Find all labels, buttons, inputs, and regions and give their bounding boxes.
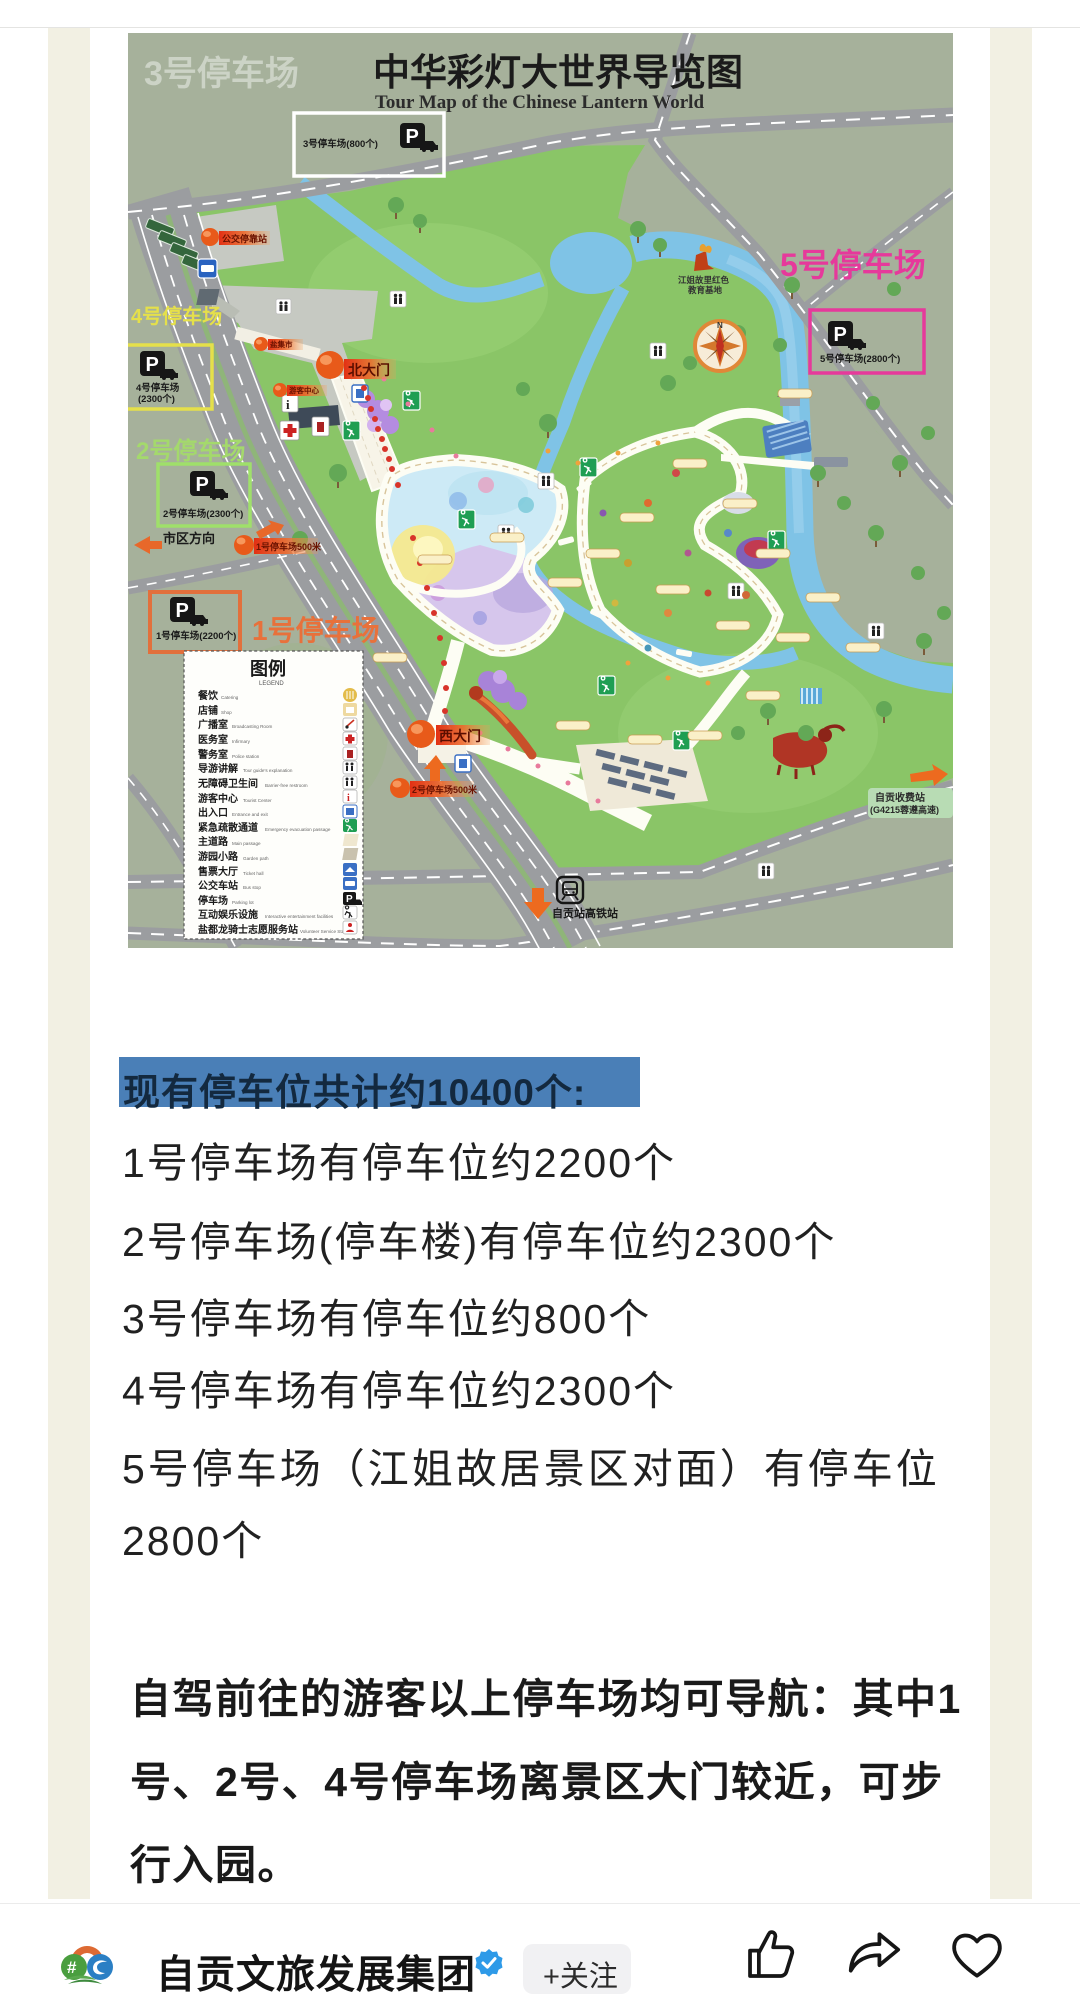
svg-text:西大门: 西大门 (439, 728, 481, 744)
svg-text:4号停车场: 4号停车场 (136, 382, 180, 394)
svg-text:5号停车场(2800个): 5号停车场(2800个) (820, 353, 900, 365)
svg-text:北大门: 北大门 (348, 362, 390, 378)
svg-text:2号停车场500米: 2号停车场500米 (412, 784, 478, 795)
svg-text:(2300个): (2300个) (138, 393, 175, 405)
svg-text:Police station: Police station (232, 754, 260, 759)
svg-text:出入口: 出入口 (198, 806, 228, 819)
svg-text:医务室: 医务室 (198, 733, 228, 746)
svg-text:Interactive entertainment faci: Interactive entertainment facilities (265, 914, 334, 919)
svg-text:Tourist Center: Tourist Center (243, 798, 272, 803)
svg-text:1号停车场(2200个): 1号停车场(2200个) (156, 630, 236, 642)
svg-text:Barrier-free restroom: Barrier-free restroom (265, 783, 308, 788)
svg-text:1号停车场500米: 1号停车场500米 (256, 541, 322, 552)
svg-text:游园小路: 游园小路 (198, 850, 239, 863)
svg-text:游客中心: 游客中心 (198, 792, 238, 805)
svg-text:Entrance and exit: Entrance and exit (232, 812, 268, 817)
svg-text:无障碍卫生间: 无障碍卫生间 (197, 777, 258, 790)
svg-text:5号停车场: 5号停车场 (780, 247, 926, 283)
svg-text:盐都龙骑士志愿服务站: 盐都龙骑士志愿服务站 (198, 923, 298, 936)
svg-text:自贡站高铁站: 自贡站高铁站 (552, 906, 618, 920)
svg-text:Broadcasting Room: Broadcasting Room (232, 724, 273, 729)
svg-text:教育基地: 教育基地 (687, 285, 723, 295)
svg-text:P: P (346, 894, 353, 905)
svg-text:2号停车场(2300个): 2号停车场(2300个) (163, 508, 243, 520)
svg-text:公交车站: 公交车站 (198, 879, 238, 892)
svg-text:Emergency evacuation passage: Emergency evacuation passage (265, 827, 331, 832)
svg-text:Infirmary: Infirmary (232, 739, 251, 744)
svg-text:图例: 图例 (250, 658, 286, 679)
svg-text:市区方向: 市区方向 (163, 531, 215, 546)
svg-text:#: # (67, 1958, 77, 1977)
svg-text:Catering: Catering (221, 695, 239, 700)
svg-text:i: i (286, 397, 290, 412)
svg-text:盐集市: 盐集市 (270, 339, 293, 349)
svg-text:Tour guide's explanation: Tour guide's explanation (243, 768, 293, 773)
svg-text:江姐故里红色: 江姐故里红色 (678, 275, 730, 285)
svg-text:导游讲解: 导游讲解 (198, 762, 238, 775)
svg-text:Shop: Shop (221, 710, 232, 715)
svg-text:游客中心: 游客中心 (289, 385, 319, 395)
svg-text:LEGEND: LEGEND (259, 681, 284, 687)
svg-text:主道路: 主道路 (198, 835, 229, 848)
svg-text:售票大厅: 售票大厅 (198, 865, 238, 878)
svg-text:Main passage: Main passage (232, 841, 261, 846)
svg-text:广播室: 广播室 (198, 718, 228, 731)
svg-text:自贡收费站: 自贡收费站 (875, 791, 925, 804)
svg-text:Parking lot: Parking lot (232, 900, 254, 905)
svg-text:1号停车场: 1号停车场 (252, 614, 380, 646)
svg-text:Bus stop: Bus stop (243, 885, 261, 890)
svg-text:互动娱乐设施: 互动娱乐设施 (198, 908, 258, 921)
svg-text:餐饮: 餐饮 (197, 689, 219, 702)
svg-text:停车场: 停车场 (198, 894, 228, 907)
svg-text:3号停车场: 3号停车场 (144, 55, 299, 93)
svg-text:警务室: 警务室 (197, 748, 228, 761)
svg-text:店铺: 店铺 (198, 704, 218, 717)
svg-text:Ticket hall: Ticket hall (243, 871, 264, 876)
svg-text:3号停车场(800个): 3号停车场(800个) (303, 138, 378, 150)
svg-text:(G4215蓉遵高速): (G4215蓉遵高速) (870, 804, 939, 815)
svg-text:中华彩灯大世界导览图: 中华彩灯大世界导览图 (373, 52, 743, 94)
svg-text:公交停靠站: 公交停靠站 (222, 233, 267, 244)
svg-text:2号停车场: 2号停车场 (136, 437, 245, 465)
svg-text:Garden path: Garden path (243, 856, 269, 861)
svg-text:N: N (717, 321, 723, 330)
svg-text:i: i (347, 793, 350, 804)
svg-text:Tour Map of the Chinese Lanter: Tour Map of the Chinese Lantern World (375, 92, 704, 113)
svg-text:4号停车场: 4号停车场 (131, 304, 222, 328)
svg-text:紧急疏散通道: 紧急疏散通道 (198, 821, 258, 834)
